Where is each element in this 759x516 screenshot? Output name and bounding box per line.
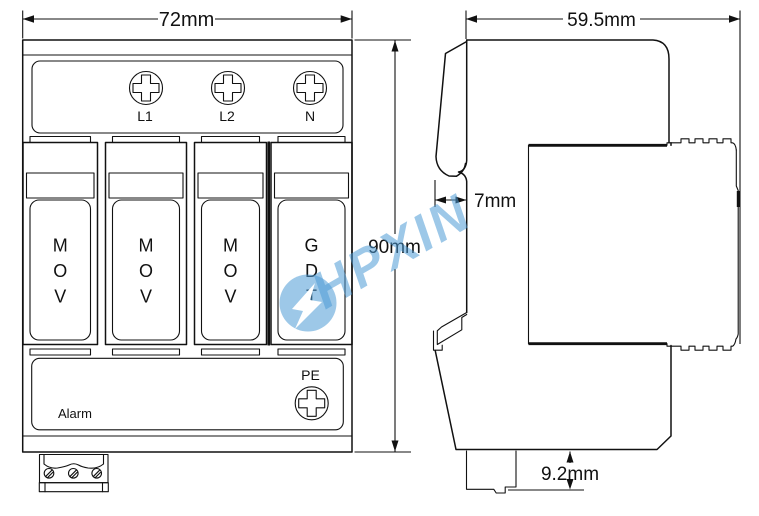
phillips-cross-icon	[297, 75, 323, 101]
dim-side-depth: 59.5mm	[466, 10, 740, 344]
watermark: HPXIN	[280, 183, 482, 331]
watermark-brand-text: HPXIN	[302, 183, 482, 320]
module-1-label: MOV	[53, 236, 68, 307]
side-terminal-block	[467, 451, 517, 493]
module-front-edge	[736, 150, 738, 339]
dim-terminal-block-label: 9.2mm	[541, 464, 599, 485]
din-rail-flange	[436, 42, 467, 177]
phillips-cross-icon	[215, 75, 241, 101]
alarm-screw-3	[92, 469, 102, 479]
front-view: L1 L2 N	[23, 40, 352, 492]
terminal-block-base	[39, 483, 108, 492]
dim-front-width-label: 72mm	[159, 9, 215, 31]
side-front-face	[459, 40, 467, 313]
module-bottom-tabs	[30, 349, 345, 355]
terminal-label-l2: L2	[219, 108, 235, 124]
alarm-label: Alarm	[58, 406, 92, 421]
pe-screw	[295, 387, 328, 420]
module-3-label: MOV	[223, 236, 238, 307]
drawing-canvas: L1 L2 N	[0, 0, 759, 516]
side-top-cap	[467, 40, 669, 143]
terminal-screw-l2	[212, 72, 245, 105]
din-release-latch	[437, 313, 466, 345]
side-view	[434, 40, 739, 493]
phillips-cross-icon	[133, 75, 159, 101]
dim-front-width: 72mm	[23, 9, 352, 39]
side-lower-body	[435, 346, 671, 450]
dim-terminal-block: 9.2mm	[508, 452, 599, 491]
phillips-cross-icon	[299, 390, 325, 416]
dim-rail-flange-label: 7mm	[474, 191, 516, 212]
front-enclosure-outline	[23, 40, 352, 452]
module-ribbed-bottom	[667, 339, 736, 350]
module-top-tabs	[30, 137, 345, 143]
terminal-screw-l1	[130, 72, 163, 105]
module-ribbed-top	[667, 139, 736, 150]
latch-hook	[434, 331, 443, 350]
dim-side-depth-label: 59.5mm	[567, 10, 636, 31]
module-windows	[27, 173, 349, 198]
pe-label: PE	[301, 367, 320, 383]
alarm-screw-1	[44, 469, 54, 479]
front-terminal-block	[39, 455, 108, 492]
terminal-label-l1: L1	[137, 108, 153, 124]
alarm-screw-2	[69, 469, 79, 479]
terminal-housing-wave	[44, 464, 104, 468]
terminal-label-n: N	[305, 108, 315, 124]
module-2-label: MOV	[139, 236, 154, 307]
spd-dimension-drawing: L1 L2 N	[0, 0, 759, 516]
side-module-cartridge	[529, 139, 739, 350]
terminal-screw-n	[294, 72, 327, 105]
